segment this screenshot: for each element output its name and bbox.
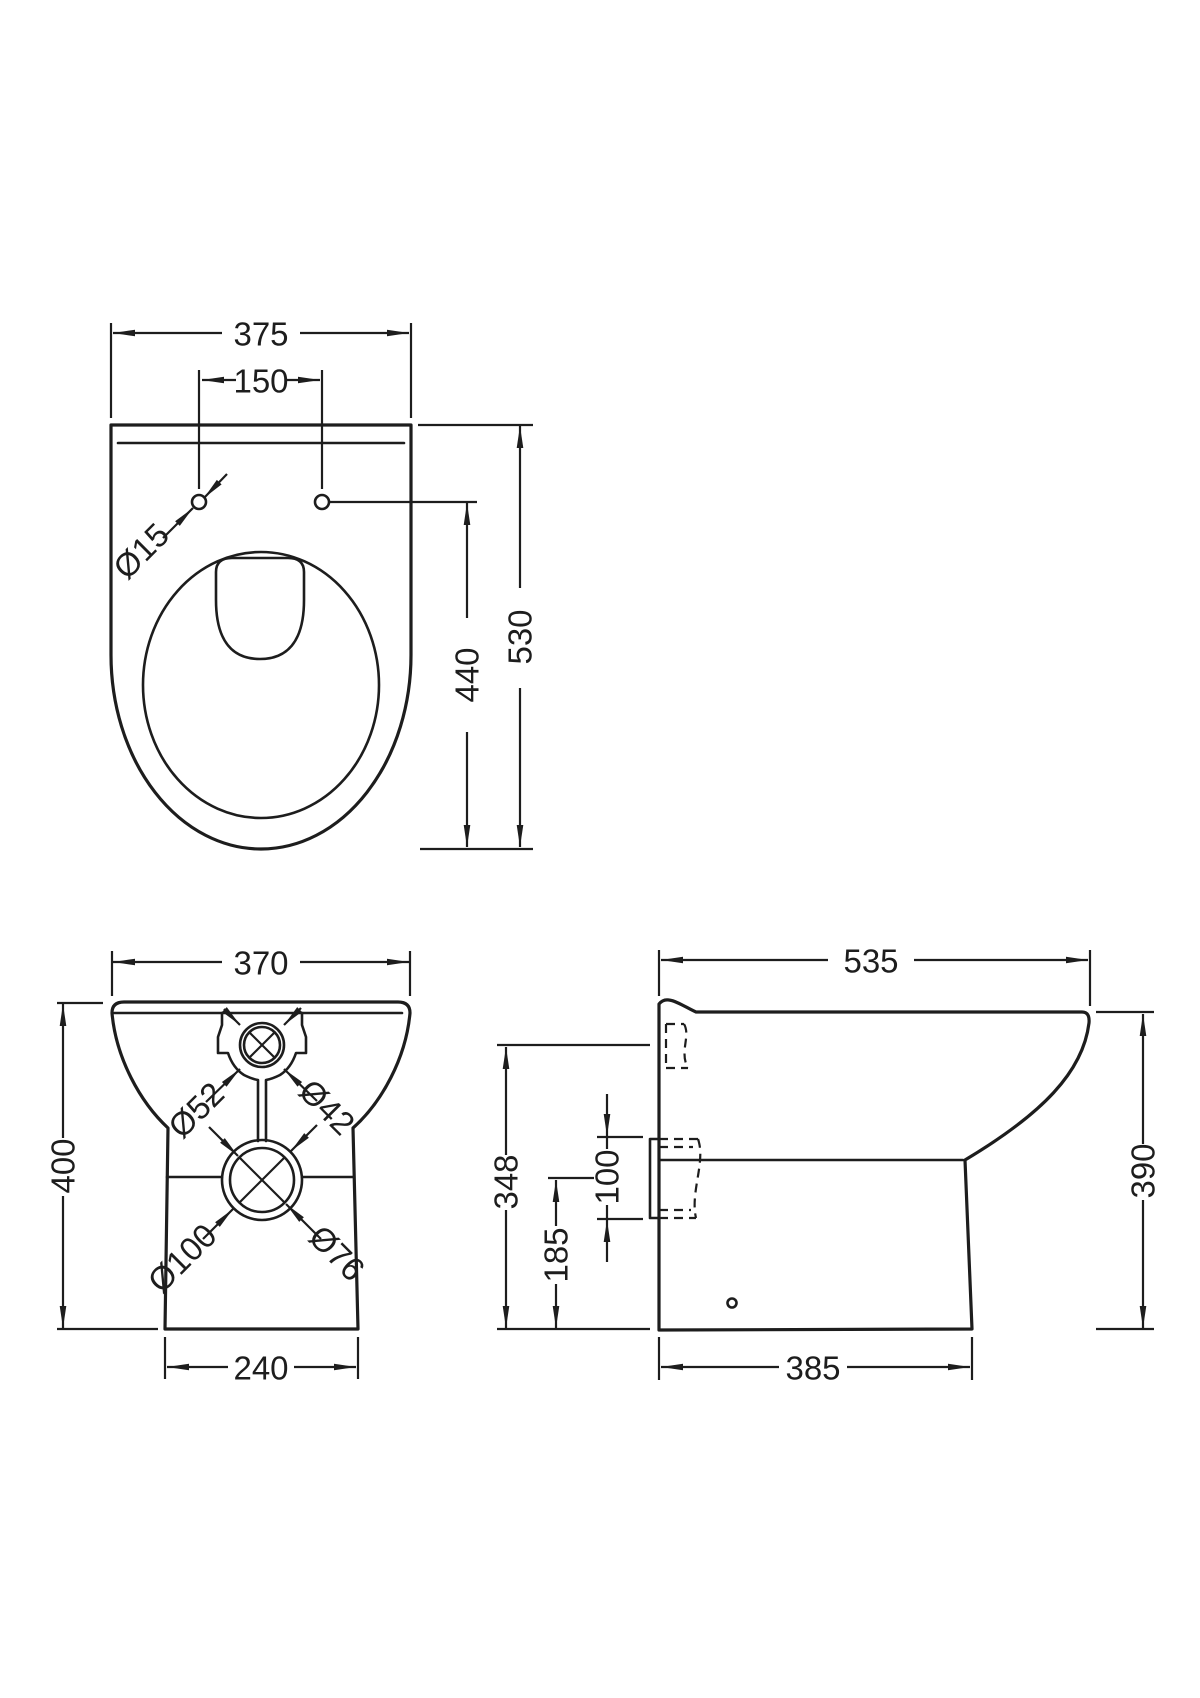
- plan-hole-diameter-label: Ø15: [106, 516, 176, 586]
- hidden-break-line: [684, 1024, 688, 1068]
- side-view: 535 348 185 100: [488, 943, 1162, 1387]
- hidden-break-line: [695, 1139, 701, 1218]
- leader-line: [291, 1125, 317, 1151]
- drawing-sheet: 375 150 Ø15 440 530: [0, 0, 1200, 1698]
- side-depth-label: 535: [843, 943, 898, 980]
- front-inlet-outer-label: Ø52: [161, 1075, 231, 1145]
- side-pan-outline: [659, 1000, 1089, 1330]
- front-outlet-inner-label: Ø76: [302, 1218, 372, 1288]
- side-inlet-boss-hidden: [666, 1024, 688, 1068]
- front-outlet-outer-label: Ø100: [140, 1216, 223, 1299]
- front-outlet-cross: [239, 1157, 285, 1203]
- side-base-depth-label: 385: [785, 1350, 840, 1387]
- front-inlet-cross: [249, 1032, 275, 1058]
- leader-line: [284, 1008, 301, 1025]
- plan-depth-dimension: 530: [418, 425, 539, 849]
- front-inlet-outer-dimension: Ø52: [161, 1008, 301, 1145]
- side-inlet-height-dimension: 348: [488, 1045, 651, 1329]
- front-width-dimension: 370: [112, 945, 410, 997]
- front-height-dimension: 400: [45, 1003, 159, 1329]
- side-base-depth-dimension: 385: [659, 1337, 972, 1387]
- front-base-width-label: 240: [233, 1350, 288, 1387]
- plan-pan-outline: [111, 425, 411, 849]
- front-inlet-housing-left: [218, 1013, 258, 1141]
- plan-water-area: [216, 558, 304, 659]
- front-view: Ø52 Ø42 Ø100 Ø76 370: [45, 945, 411, 1387]
- plan-depth-label: 530: [502, 609, 539, 664]
- side-bowl-height-label: 390: [1125, 1143, 1162, 1198]
- side-bowl-height-dimension: 390: [1096, 1012, 1162, 1329]
- plan-seat-hole-right: [315, 495, 329, 509]
- plan-hole-to-front-dimension: 440: [329, 502, 486, 847]
- front-inlet-housing-right: [266, 1013, 306, 1141]
- side-outlet-height-label: 185: [538, 1227, 575, 1282]
- side-inlet-height-label: 348: [488, 1154, 525, 1209]
- leader-line: [209, 1127, 238, 1156]
- side-outlet-diameter-dimension: 100: [589, 1094, 644, 1262]
- leader-line: [224, 1009, 240, 1025]
- side-depth-dimension: 535: [659, 943, 1090, 1007]
- side-outlet-diameter-label: 100: [589, 1149, 626, 1204]
- front-width-label: 370: [233, 945, 288, 982]
- leader-line: [204, 474, 227, 498]
- side-fixing-hole: [728, 1299, 737, 1308]
- plan-hole-to-front-label: 440: [449, 647, 486, 702]
- plan-view: 375 150 Ø15 440 530: [106, 316, 539, 850]
- front-height-label: 400: [45, 1138, 82, 1193]
- plan-hole-diameter-dimension: Ø15: [106, 474, 227, 586]
- toilet-technical-drawing: 375 150 Ø15 440 530: [0, 0, 1200, 1698]
- plan-bowl-rim: [143, 552, 379, 818]
- plan-hole-spacing-label: 150: [233, 363, 288, 400]
- side-outlet-height-dimension: 185: [538, 1178, 595, 1328]
- plan-width-label: 375: [233, 316, 288, 353]
- front-base-width-dimension: 240: [165, 1337, 358, 1387]
